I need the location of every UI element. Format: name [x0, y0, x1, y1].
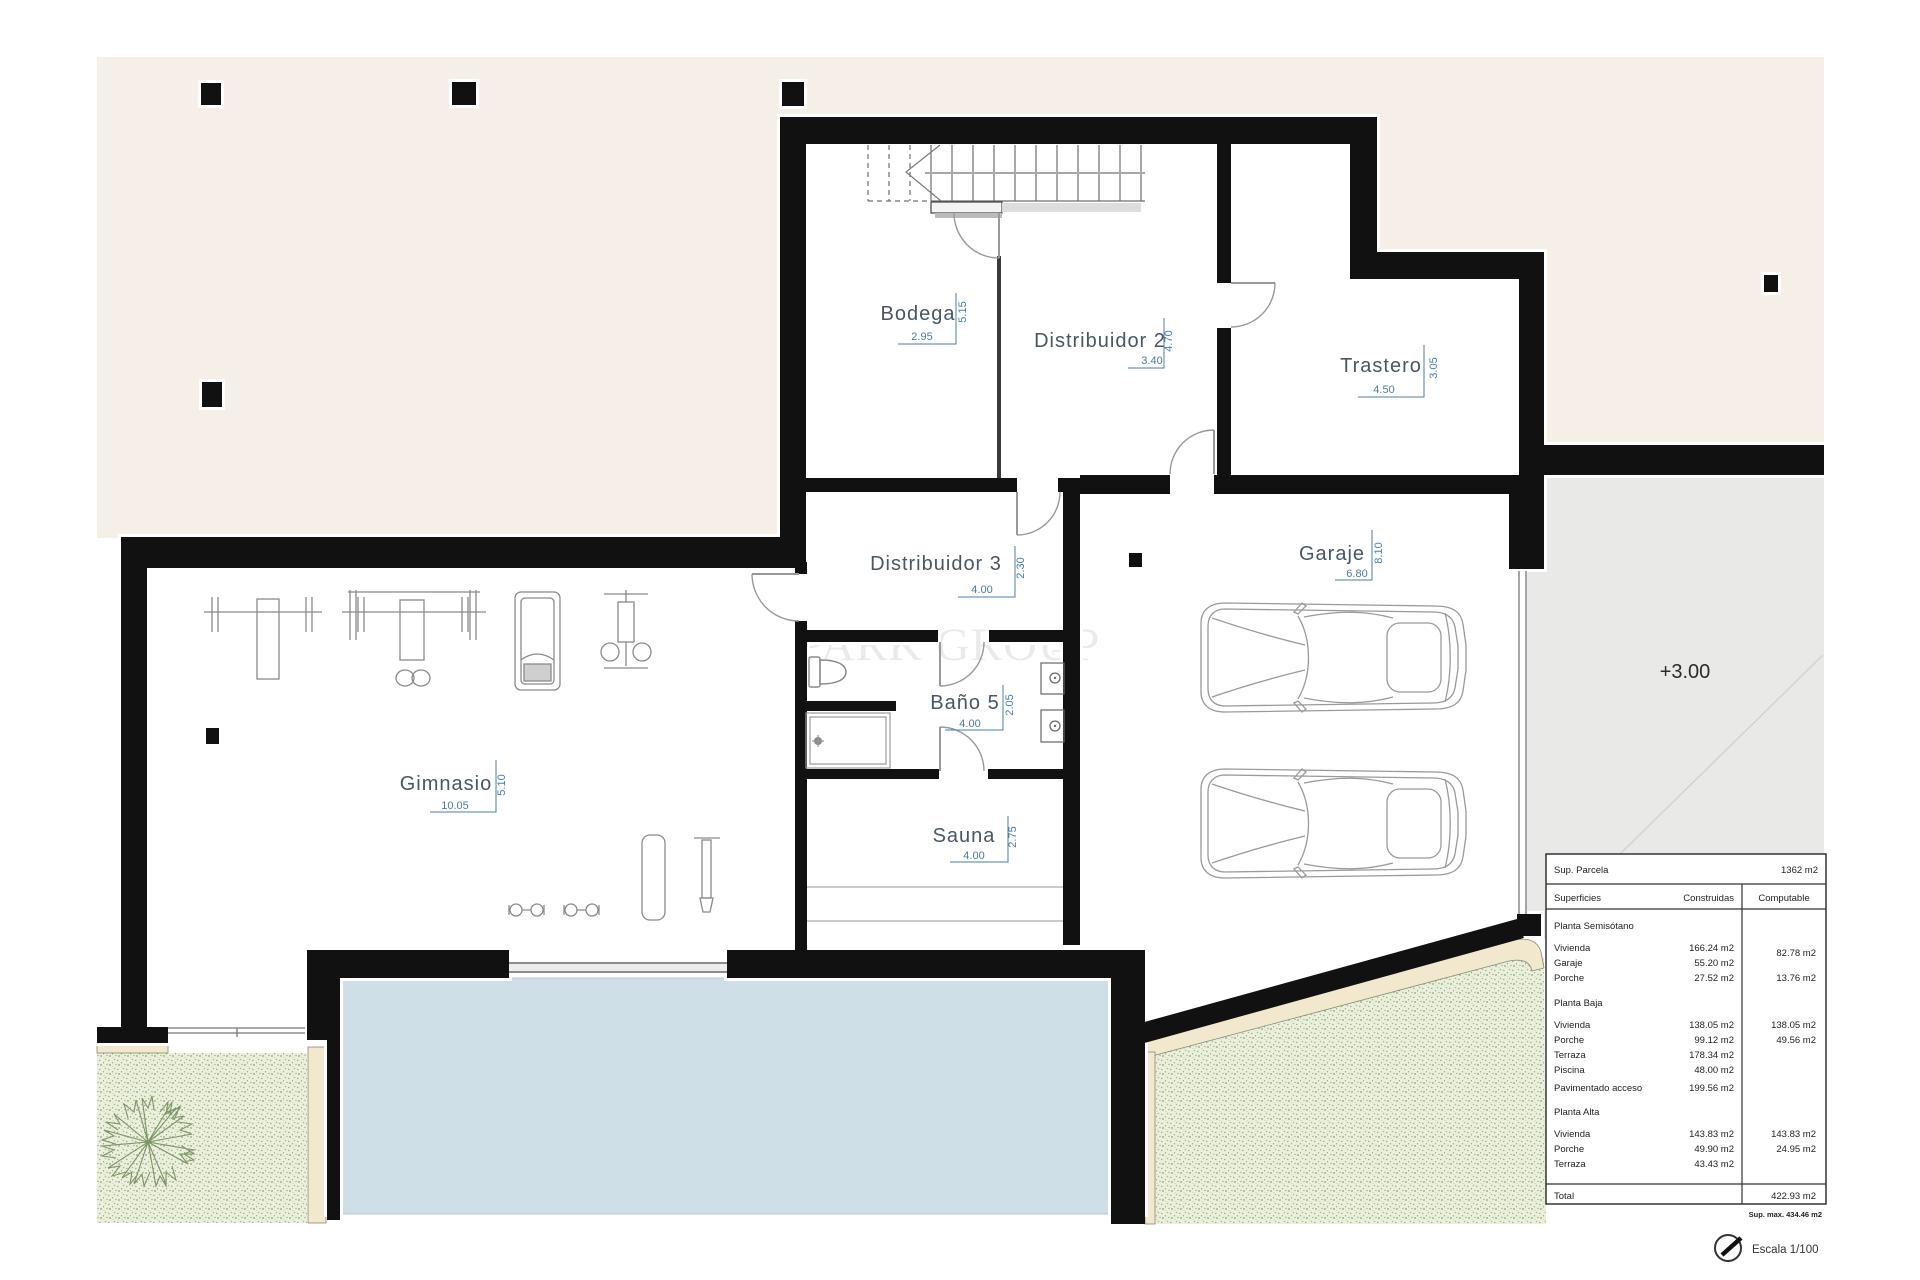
- svg-text:55.20 m2: 55.20 m2: [1694, 958, 1734, 969]
- svg-text:5.15: 5.15: [957, 301, 969, 322]
- svg-text:2.75: 2.75: [1007, 826, 1019, 847]
- svg-text:Vivienda: Vivienda: [1554, 943, 1591, 954]
- svg-text:24.95 m2: 24.95 m2: [1776, 1144, 1816, 1155]
- svg-text:10.05: 10.05: [441, 800, 469, 812]
- svg-text:43.43 m2: 43.43 m2: [1694, 1159, 1734, 1170]
- svg-text:Superficies: Superficies: [1554, 893, 1601, 904]
- svg-text:166.24 m2: 166.24 m2: [1689, 943, 1734, 954]
- svg-text:49.56 m2: 49.56 m2: [1776, 1035, 1816, 1046]
- svg-text:4.00: 4.00: [959, 718, 980, 730]
- svg-text:13.76 m2: 13.76 m2: [1776, 973, 1816, 984]
- svg-text:49.90 m2: 49.90 m2: [1694, 1144, 1734, 1155]
- svg-text:4.00: 4.00: [971, 584, 992, 596]
- svg-text:143.83 m2: 143.83 m2: [1771, 1129, 1816, 1140]
- svg-text:3.05: 3.05: [1428, 357, 1440, 378]
- svg-text:2.30: 2.30: [1015, 557, 1027, 578]
- svg-text:2.05: 2.05: [1004, 694, 1016, 715]
- svg-text:Garaje: Garaje: [1299, 543, 1365, 565]
- svg-text:4.70: 4.70: [1163, 330, 1175, 351]
- svg-text:Terraza: Terraza: [1554, 1159, 1586, 1170]
- svg-text:8.10: 8.10: [1373, 542, 1385, 563]
- svg-text:Gimnasio: Gimnasio: [400, 773, 492, 795]
- svg-text:Porche: Porche: [1554, 1035, 1584, 1046]
- svg-text:Garaje: Garaje: [1554, 958, 1583, 969]
- svg-text:1362 m2: 1362 m2: [1781, 865, 1818, 876]
- svg-text:Construidas: Construidas: [1683, 893, 1734, 904]
- svg-text:Computable: Computable: [1758, 893, 1809, 904]
- svg-text:199.56 m2: 199.56 m2: [1689, 1083, 1734, 1094]
- svg-text:Porche: Porche: [1554, 1144, 1584, 1155]
- svg-text:422.93 m2: 422.93 m2: [1771, 1191, 1816, 1202]
- svg-text:Piscina: Piscina: [1554, 1065, 1585, 1076]
- svg-text:Sauna: Sauna: [933, 825, 996, 847]
- svg-text:Planta Semisótano: Planta Semisótano: [1554, 921, 1634, 932]
- svg-text:+3.00: +3.00: [1660, 661, 1711, 683]
- svg-text:Terraza: Terraza: [1554, 1050, 1586, 1061]
- svg-text:Distribuidor 2: Distribuidor 2: [1034, 330, 1166, 352]
- svg-text:2.95: 2.95: [911, 331, 932, 343]
- svg-text:Trastero: Trastero: [1340, 355, 1422, 377]
- svg-text:Bodega: Bodega: [881, 303, 956, 325]
- svg-text:48.00 m2: 48.00 m2: [1694, 1065, 1734, 1076]
- svg-text:Planta Baja: Planta Baja: [1554, 998, 1603, 1009]
- svg-text:4.50: 4.50: [1373, 384, 1394, 396]
- svg-text:Total: Total: [1554, 1191, 1574, 1202]
- svg-text:99.12 m2: 99.12 m2: [1694, 1035, 1734, 1046]
- svg-text:Vivienda: Vivienda: [1554, 1020, 1591, 1031]
- svg-text:4.00: 4.00: [963, 850, 984, 862]
- svg-text:3.40: 3.40: [1141, 355, 1162, 367]
- svg-text:5.10: 5.10: [496, 774, 508, 795]
- svg-text:Porche: Porche: [1554, 973, 1584, 984]
- svg-text:Sup. Parcela: Sup. Parcela: [1554, 865, 1609, 876]
- svg-text:Pavimentado acceso: Pavimentado acceso: [1554, 1083, 1642, 1094]
- svg-text:Vivienda: Vivienda: [1554, 1129, 1591, 1140]
- svg-text:6.80: 6.80: [1346, 568, 1367, 580]
- svg-text:Sup. max. 434.46 m2: Sup. max. 434.46 m2: [1749, 1210, 1822, 1219]
- svg-text:143.83 m2: 143.83 m2: [1689, 1129, 1734, 1140]
- svg-text:27.52 m2: 27.52 m2: [1694, 973, 1734, 984]
- svg-text:138.05 m2: 138.05 m2: [1689, 1020, 1734, 1031]
- svg-text:82.78 m2: 82.78 m2: [1776, 948, 1816, 959]
- svg-text:138.05 m2: 138.05 m2: [1771, 1020, 1816, 1031]
- svg-text:Distribuidor 3: Distribuidor 3: [870, 553, 1002, 575]
- svg-text:Baño 5: Baño 5: [930, 692, 999, 714]
- svg-text:Escala 1/100: Escala 1/100: [1752, 1244, 1819, 1256]
- svg-text:Planta Alta: Planta Alta: [1554, 1107, 1600, 1118]
- svg-text:178.34 m2: 178.34 m2: [1689, 1050, 1734, 1061]
